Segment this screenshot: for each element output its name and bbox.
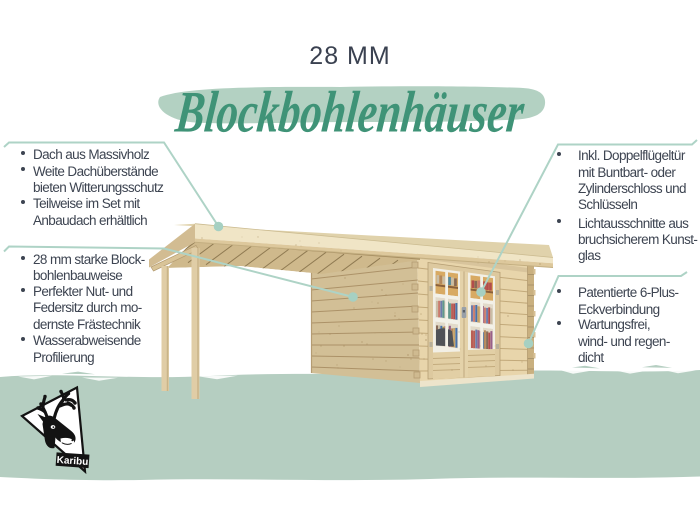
svg-text:Karibu: Karibu: [56, 455, 88, 468]
